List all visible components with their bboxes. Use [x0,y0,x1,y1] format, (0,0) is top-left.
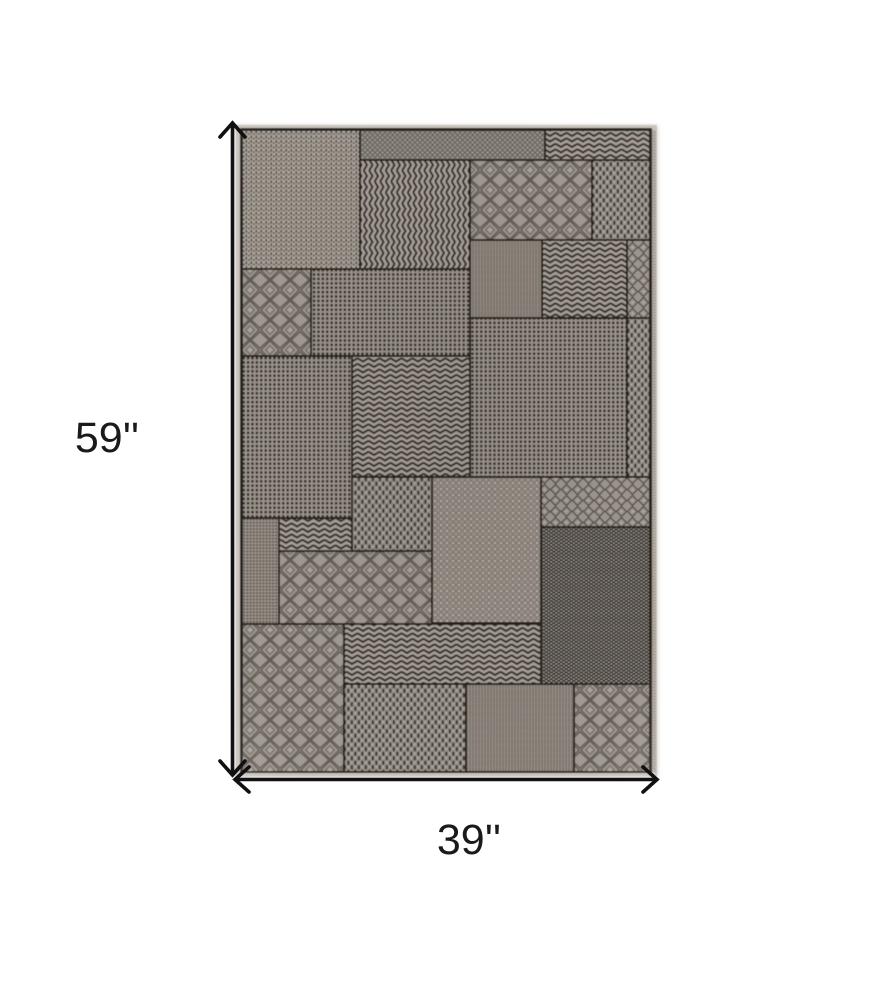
svg-text:39'': 39'' [437,816,501,864]
svg-text:59'': 59'' [75,414,139,462]
